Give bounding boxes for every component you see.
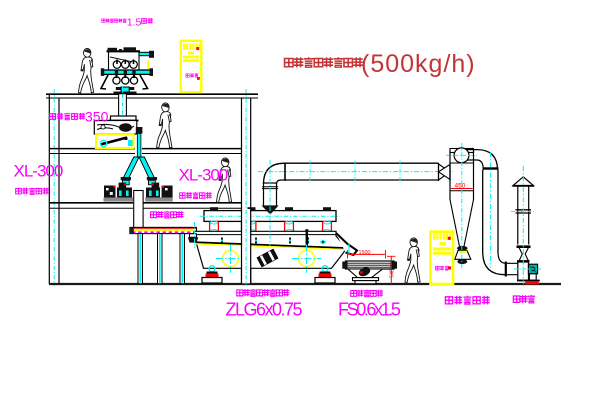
svg-text:XL-300: XL-300 <box>14 162 63 181</box>
svg-text:548: 548 <box>390 269 396 278</box>
svg-text:FS0.6x1.5: FS0.6x1.5 <box>338 300 401 320</box>
svg-text:XL-300: XL-300 <box>179 166 228 185</box>
svg-text:1500: 1500 <box>359 250 371 256</box>
svg-text:350: 350 <box>85 109 109 125</box>
svg-text:1.5: 1.5 <box>127 17 142 29</box>
svg-text:(500kg/h): (500kg/h) <box>361 50 476 78</box>
svg-text:ZLG6x0.75: ZLG6x0.75 <box>226 300 303 320</box>
